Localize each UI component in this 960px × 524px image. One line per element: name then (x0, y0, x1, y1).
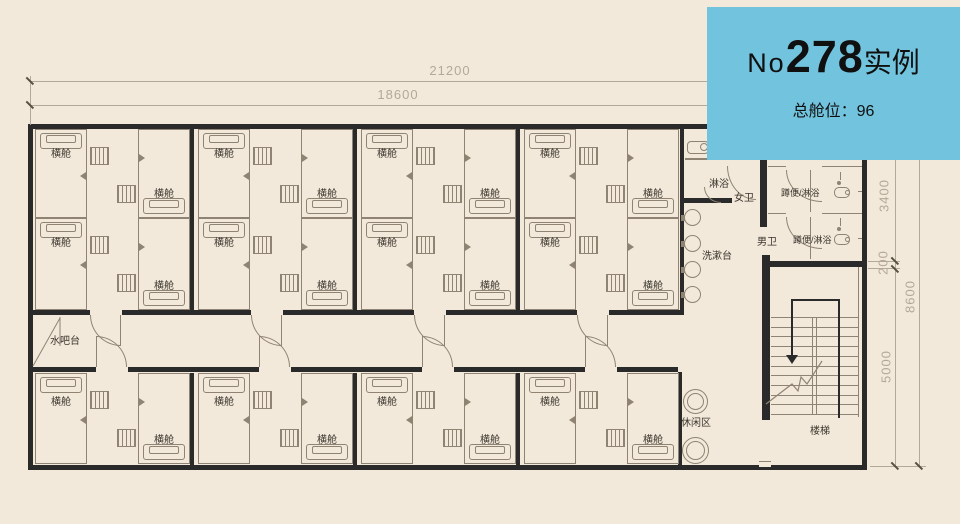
wall-segment (283, 310, 414, 315)
wall-line (768, 166, 786, 167)
capsule-room-label: 横舱 (464, 436, 516, 446)
capsule-room-label: 横舱 (361, 150, 413, 160)
capsule-pillow (372, 135, 402, 143)
lounge-label: 休闲区 (681, 419, 711, 429)
ladder-icon (117, 185, 136, 203)
capsule-pillow (312, 200, 342, 208)
stair-tread (771, 395, 858, 396)
ladder-icon (90, 391, 109, 409)
female-wc-label: 女卫 (734, 194, 754, 204)
ladder-icon (416, 236, 435, 254)
capsule-room-label: 横舱 (524, 239, 576, 249)
stair-tread (771, 346, 858, 347)
lounge-chair (687, 393, 704, 410)
ladder-icon (606, 185, 625, 203)
capsule-pillow (372, 224, 402, 232)
wall-segment (353, 373, 357, 465)
capsule-room-label: 横舱 (301, 436, 353, 446)
capsule-room-label: 横舱 (361, 398, 413, 408)
wall-segment (454, 367, 585, 372)
capsule-pillow (209, 379, 239, 387)
wall-segment (680, 129, 684, 315)
door-arc (259, 336, 290, 367)
capsule-room-label: 横舱 (198, 398, 250, 408)
door-swing-icon (465, 154, 471, 162)
dimension-line (895, 150, 896, 466)
capsule-room-label: 横舱 (627, 190, 679, 200)
capsule-pillow (46, 224, 76, 232)
stair-arrow-head-icon (786, 355, 798, 364)
stair-tread (771, 317, 858, 318)
stair-tread (771, 366, 858, 367)
capsule-room-label: 横舱 (301, 282, 353, 292)
wall-segment (609, 310, 684, 315)
ladder-icon (579, 147, 598, 165)
shower-head-icon (840, 218, 841, 226)
door-swing-icon (406, 416, 412, 424)
wall-segment (33, 367, 96, 372)
info-panel-subtitle: 总舱位：96 (707, 97, 960, 121)
wall-segment (28, 465, 867, 470)
ladder-icon (253, 391, 272, 409)
door-swing-icon (139, 243, 145, 251)
sink (684, 235, 701, 252)
door-leaf (422, 336, 423, 367)
dimension-line (919, 150, 920, 466)
door-swing-icon (569, 416, 575, 424)
door-swing-icon (243, 172, 249, 180)
ladder-icon (579, 236, 598, 254)
wall-segment (28, 124, 33, 470)
dimension-label-inner-width: 18600 (348, 88, 448, 101)
stair-direction-arrow (791, 299, 793, 357)
ladder-icon (253, 236, 272, 254)
ladder-icon (606, 274, 625, 292)
wall-segment (33, 310, 90, 315)
ladder-icon (443, 429, 462, 447)
ladder-icon (579, 391, 598, 409)
stair-tread (771, 414, 858, 415)
ladder-icon (280, 185, 299, 203)
wall-segment (128, 367, 259, 372)
ladder-icon (416, 147, 435, 165)
ladder-icon (90, 147, 109, 165)
capsule-pillow (46, 379, 76, 387)
ladder-icon (280, 274, 299, 292)
ladder-icon (253, 147, 272, 165)
shower-head-icon (837, 181, 841, 185)
ladder-icon (443, 185, 462, 203)
wall-segment (516, 129, 520, 310)
stair-direction-arrow (838, 299, 840, 418)
capsule-room-label: 横舱 (35, 150, 87, 160)
wall-segment (770, 261, 862, 267)
capsule-room-label: 横舱 (524, 150, 576, 160)
ladder-icon (606, 429, 625, 447)
sink-tap (681, 241, 685, 247)
wall-segment (862, 124, 867, 470)
door-swing-icon (302, 243, 308, 251)
wall-line (858, 191, 862, 192)
door-arc (422, 336, 453, 367)
wall-segment (516, 373, 520, 465)
squat-shower-label-2: 蹲便/淋浴 (793, 236, 832, 245)
stair-break-line (766, 361, 822, 404)
capsule-room-label: 横舱 (138, 282, 190, 292)
lounge-chair (686, 441, 705, 460)
wall-segment (291, 367, 422, 372)
info-panel-title: No 278 实例 (707, 7, 960, 83)
capsule-room-label: 横舱 (524, 398, 576, 408)
capsule-room-label: 横舱 (361, 239, 413, 249)
male-wc-label: 男卫 (757, 238, 777, 248)
ladder-icon (90, 236, 109, 254)
info-title-prefix: No (747, 48, 786, 79)
capsule-room-label: 横舱 (138, 190, 190, 200)
door-swing-icon (80, 416, 86, 424)
shower-label: 淋浴 (709, 180, 729, 190)
capsule-pillow (149, 292, 179, 300)
wall-line (768, 213, 786, 214)
capsule-pillow (638, 200, 668, 208)
door-leaf (120, 315, 121, 346)
door-swing-icon (465, 398, 471, 406)
wall-segment (190, 373, 194, 465)
water-bar-label: 水吧台 (50, 337, 80, 347)
info-title-number: 278 (786, 31, 864, 83)
ladder-icon (280, 429, 299, 447)
wall-segment (617, 367, 678, 372)
capsule-room-label: 横舱 (198, 150, 250, 160)
wall-segment (122, 310, 251, 315)
shower-head-icon (840, 172, 841, 180)
dimension-label-right-upper: 3400 (878, 166, 891, 226)
door-leaf (96, 336, 97, 367)
door-leaf (444, 315, 445, 346)
stair-tread (771, 385, 858, 386)
capsule-room-label: 横舱 (138, 436, 190, 446)
capsule-pillow (638, 446, 668, 454)
capsule-room-label: 横舱 (464, 190, 516, 200)
stair-tread (771, 404, 858, 405)
door-leaf (585, 336, 586, 367)
sink (684, 286, 701, 303)
door-swing-icon (465, 243, 471, 251)
door-swing-icon (139, 398, 145, 406)
wall-notch (759, 461, 771, 467)
door-leaf (259, 336, 260, 367)
capsule-room-label: 横舱 (464, 282, 516, 292)
door-swing-icon (628, 398, 634, 406)
ladder-icon (443, 274, 462, 292)
wall-line (822, 213, 862, 214)
capsule-pillow (535, 379, 565, 387)
toilet-bowl (845, 190, 850, 195)
door-swing-icon (243, 416, 249, 424)
sink (684, 261, 701, 278)
door-swing-icon (628, 243, 634, 251)
sink-tap (681, 292, 685, 298)
door-swing-icon (139, 154, 145, 162)
capsule-pillow (209, 135, 239, 143)
dimension-label-right-wall: 200 (877, 233, 890, 293)
stairs-label: 楼梯 (810, 427, 830, 437)
stair-tread (771, 327, 858, 328)
capsule-pillow (475, 292, 505, 300)
ladder-icon (416, 391, 435, 409)
door-swing-icon (80, 172, 86, 180)
capsule-room-label: 横舱 (301, 190, 353, 200)
door-swing-icon (569, 172, 575, 180)
wall-line (858, 267, 859, 417)
door-swing-icon (628, 154, 634, 162)
wall-segment (190, 129, 194, 310)
sink-tap (681, 215, 685, 221)
stair-direction-arrow (791, 299, 840, 301)
door-leaf (607, 315, 608, 346)
wall-segment (446, 310, 577, 315)
squat-shower-label-1: 蹲便/淋浴 (781, 189, 820, 198)
capsule-room-label: 横舱 (627, 282, 679, 292)
sink-tap (681, 267, 685, 273)
wall-line (858, 238, 862, 239)
stair-tread (771, 375, 858, 376)
toilet-bowl (845, 237, 850, 242)
washstand-label: 洗漱台 (702, 252, 732, 262)
capsule-pillow (475, 200, 505, 208)
door-swing-icon (569, 261, 575, 269)
door-leaf (281, 315, 282, 346)
door-arc (96, 336, 127, 367)
ladder-icon (117, 429, 136, 447)
door-swing-icon (302, 398, 308, 406)
capsule-pillow (638, 292, 668, 300)
capsule-pillow (209, 224, 239, 232)
ladder-icon (117, 274, 136, 292)
wall-segment (353, 129, 357, 310)
door-arc (585, 336, 616, 367)
floor-plan-canvas: 横舱横舱横舱横舱横舱横舱横舱横舱横舱横舱横舱横舱横舱横舱横舱横舱横舱横舱横舱横舱… (0, 0, 960, 524)
capsule-pillow (312, 446, 342, 454)
door-swing-icon (406, 172, 412, 180)
capsule-pillow (475, 446, 505, 454)
info-title-suffix: 实例 (864, 41, 920, 81)
door-swing-icon (243, 261, 249, 269)
dimension-label-total-width: 21200 (400, 64, 500, 77)
capsule-pillow (535, 135, 565, 143)
capsule-room-label: 横舱 (35, 398, 87, 408)
wall-line (822, 166, 862, 167)
door-swing-icon (406, 261, 412, 269)
capsule-pillow (372, 379, 402, 387)
stair-tread (771, 336, 858, 337)
capsule-pillow (535, 224, 565, 232)
sink (684, 209, 701, 226)
capsule-pillow (149, 446, 179, 454)
door-swing-icon (80, 261, 86, 269)
wall-segment (680, 198, 732, 203)
info-panel: No 278 实例 总舱位：96 (707, 7, 960, 160)
capsule-room-label: 横舱 (198, 239, 250, 249)
shower-head-icon (837, 227, 841, 231)
dimension-label-right-total: 8600 (904, 267, 917, 327)
capsule-pillow (149, 200, 179, 208)
wall-segment (762, 255, 770, 420)
capsule-pillow (312, 292, 342, 300)
stair-tread (771, 356, 858, 357)
dimension-label-right-lower: 5000 (880, 337, 893, 397)
wall-segment (760, 160, 767, 227)
door-swing-icon (302, 154, 308, 162)
capsule-room-label: 横舱 (35, 239, 87, 249)
capsule-pillow (46, 135, 76, 143)
capsule-room-label: 横舱 (627, 436, 679, 446)
